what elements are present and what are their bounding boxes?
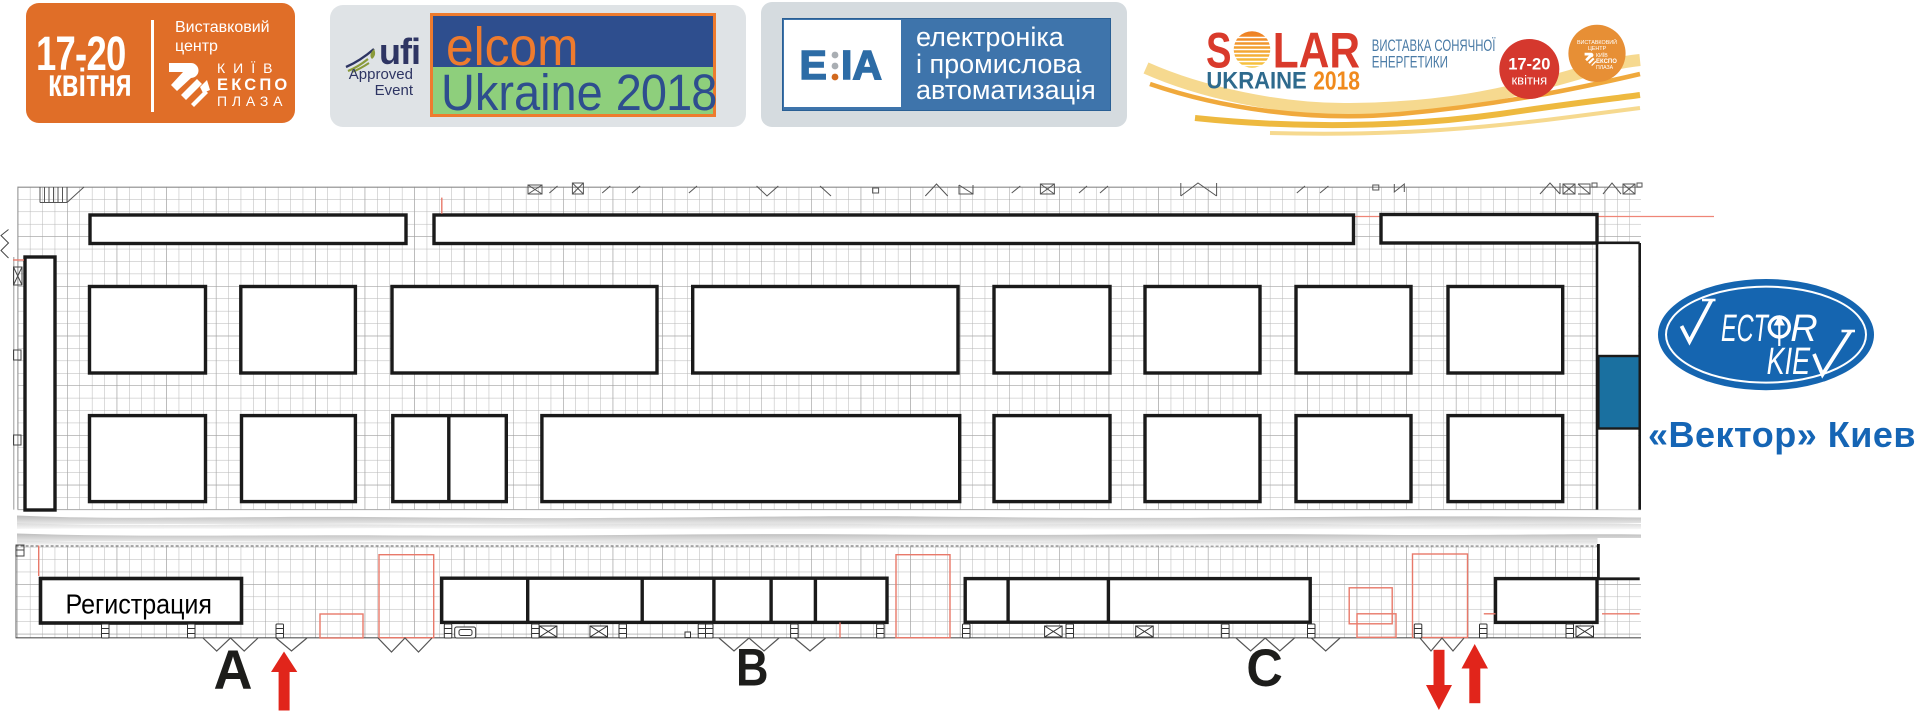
svg-text:KIE: KIE: [1767, 341, 1811, 383]
svg-text:квітня: квітня: [1511, 73, 1547, 88]
svg-text:A: A: [214, 638, 253, 701]
svg-text:17-20: 17-20: [1508, 56, 1550, 74]
svg-text:B: B: [736, 639, 769, 698]
svg-text:2018: 2018: [1313, 66, 1360, 96]
svg-text:Регистрация: Регистрация: [66, 589, 213, 620]
svg-text:ЦЕНТР: ЦЕНТР: [1588, 46, 1607, 52]
svg-text:ЕНЕРГЕТИКИ: ЕНЕРГЕТИКИ: [1372, 53, 1448, 72]
svg-text:КИЇВ: КИЇВ: [1596, 52, 1608, 59]
svg-text:ВИСТАВКОВИЙ: ВИСТАВКОВИЙ: [1577, 38, 1617, 46]
svg-text:UKRAINE: UKRAINE: [1206, 68, 1306, 95]
svg-text:C: C: [1246, 639, 1282, 698]
svg-text:ECT: ECT: [1721, 308, 1770, 350]
svg-text:ПЛАЗА: ПЛАЗА: [1596, 65, 1614, 71]
